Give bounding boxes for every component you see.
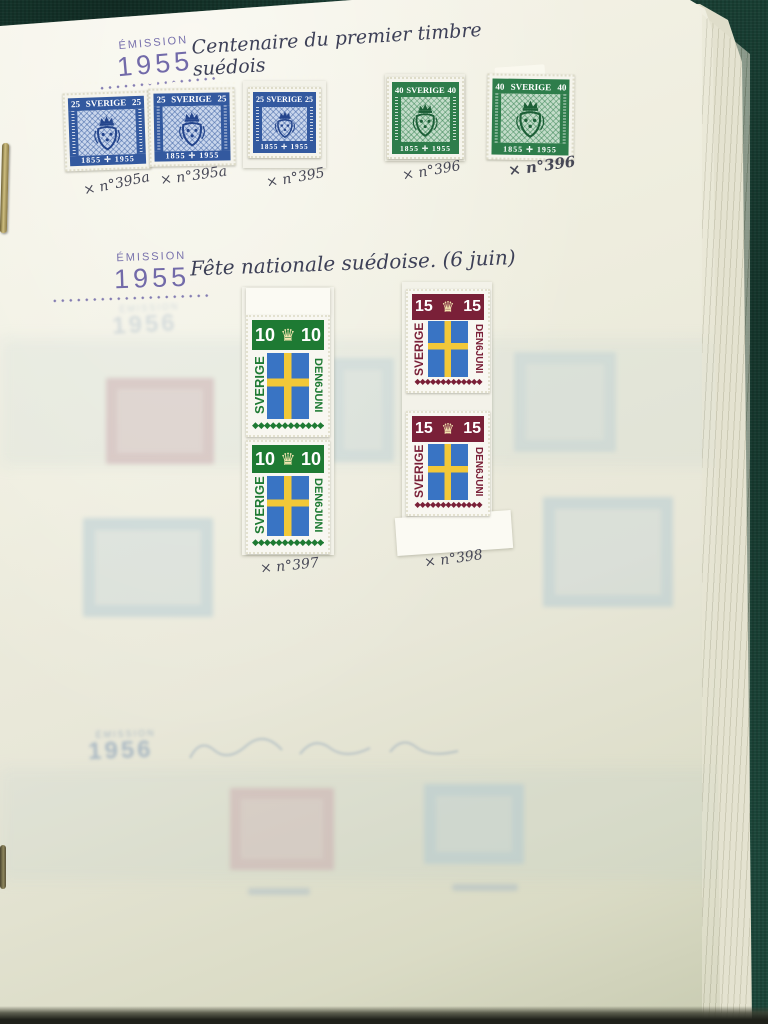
stamp-value: 25 bbox=[71, 99, 80, 109]
crown-icon: ♛ bbox=[280, 451, 295, 468]
dotted-line bbox=[51, 293, 209, 304]
stamp-value: 15 bbox=[415, 298, 433, 316]
stamp-country: SVERIGE bbox=[86, 98, 127, 109]
stamp-side-band bbox=[307, 107, 316, 142]
diamond-border: ◆◆◆◆◆◆◆◆◆◆◆◆◆ bbox=[252, 421, 324, 432]
photo-scene: ÉMISSION 1956 ÉMISSION 1956 ÉMISSION 195… bbox=[0, 0, 768, 1024]
stamp-years: 1855 ✛ 1955 bbox=[81, 154, 135, 165]
stamp-side-band bbox=[450, 97, 459, 142]
stamp-date: DEN6JUNI bbox=[473, 320, 484, 378]
show-through-band bbox=[0, 768, 720, 880]
stamp-country: SVERIGE bbox=[412, 442, 426, 501]
stamp-years: 1855 ✛ 1955 bbox=[166, 151, 220, 161]
stamp-date: DEN6JUNI bbox=[473, 442, 484, 501]
diamond-border: ◆◆◆◆◆◆◆◆◆◆◆◆◆ bbox=[412, 501, 484, 511]
stamp-side-band bbox=[392, 97, 401, 142]
stamp-value: 10 bbox=[255, 325, 275, 346]
stamp-value: 25 bbox=[156, 95, 165, 105]
stamp-date: DEN6JUNI bbox=[312, 350, 324, 421]
stamp-country: SVERIGE bbox=[412, 320, 426, 378]
coat-of-arms-icon bbox=[174, 108, 211, 148]
ghost-stamp-outline bbox=[424, 784, 524, 864]
stamp-10-ore-flag-green-2: 10 ♛ 10 SVERIGE DEN6JUNI ◆◆◆◆◆◆◆◆◆◆◆◆◆ bbox=[246, 440, 330, 554]
stamp-25-ore-blue-1: 25 SVERIGE 25 1855 ✛ 1955 bbox=[63, 91, 152, 172]
ghost-stamp-outline bbox=[543, 497, 673, 607]
selvage-perforation bbox=[63, 80, 237, 86]
stamp-value: 10 bbox=[301, 449, 321, 470]
stamp-years: 1855 ✛ 1955 bbox=[260, 143, 308, 151]
mount-tab bbox=[395, 510, 513, 556]
ghost-stamp-outline bbox=[83, 518, 213, 617]
catalog-label: × n°395a bbox=[159, 163, 228, 188]
crown-icon: ♛ bbox=[280, 327, 295, 344]
stamp-country: SVERIGE bbox=[406, 85, 444, 95]
swedish-flag bbox=[428, 321, 468, 377]
stamp-value: 25 bbox=[132, 97, 141, 107]
crown-icon: ♛ bbox=[441, 300, 454, 315]
ghost-stamp-outline bbox=[332, 358, 394, 462]
diamond-border: ◆◆◆◆◆◆◆◆◆◆◆◆◆ bbox=[412, 378, 484, 388]
section1-title: Centenaire du premier timbre suédois bbox=[191, 15, 543, 80]
stamp-25-ore-blue-3: 25 SVERIGE 25 1855 ✛ 1955 bbox=[248, 87, 321, 158]
section2-title: Fête nationale suédoise. (6 juin) bbox=[190, 244, 561, 281]
album-page: ÉMISSION 1956 ÉMISSION 1956 ÉMISSION 195… bbox=[0, 0, 768, 1024]
mount-tab bbox=[246, 288, 330, 315]
ghost-label bbox=[452, 884, 518, 891]
coat-of-arms-icon bbox=[271, 109, 299, 140]
coat-of-arms-icon bbox=[88, 112, 125, 153]
stamp-date: DEN6JUNI bbox=[312, 473, 324, 538]
stamp-value: 15 bbox=[415, 420, 433, 438]
stamp-value: 15 bbox=[463, 298, 481, 316]
stamp-side-band bbox=[221, 105, 231, 150]
stamp-side-band bbox=[253, 107, 262, 142]
binder-pin-bottom bbox=[0, 845, 6, 889]
ghost-stamp-outline bbox=[106, 378, 214, 464]
stamp-40-ore-green-2: 40 SVERIGE 40 1855 ✛ 1955 bbox=[486, 73, 574, 160]
crown-icon: ♛ bbox=[441, 422, 454, 437]
stamp-country: SVERIGE bbox=[266, 95, 302, 104]
stamp-value: 25 bbox=[217, 94, 226, 104]
stamp-country: SVERIGE bbox=[511, 81, 552, 92]
stamp-value: 10 bbox=[255, 449, 275, 470]
stamp-side-band bbox=[135, 108, 146, 153]
stamp-value: 40 bbox=[447, 85, 456, 95]
diamond-border: ◆◆◆◆◆◆◆◆◆◆◆◆◆ bbox=[252, 538, 324, 549]
stamp-40-ore-green-1: 40 SVERIGE 40 1855 ✛ 1955 bbox=[387, 77, 464, 159]
stamp-10-ore-flag-green-1: 10 ♛ 10 SVERIGE DEN6JUNI ◆◆◆◆◆◆◆◆◆◆◆◆◆ bbox=[246, 315, 330, 437]
ghost-label bbox=[248, 888, 310, 895]
selvage-perforation bbox=[247, 74, 323, 80]
stamp-country: SVERIGE bbox=[171, 94, 212, 105]
stamp-value: 40 bbox=[557, 82, 566, 92]
stamp-value: 40 bbox=[395, 85, 404, 95]
ghost-emission-stamp: ÉMISSION 1956 bbox=[111, 302, 181, 339]
swedish-flag bbox=[428, 444, 468, 500]
stamp-value: 15 bbox=[463, 420, 481, 438]
table-edge-shadow bbox=[0, 1006, 768, 1024]
stamp-country: SVERIGE bbox=[252, 473, 267, 538]
stamp-15-ore-flag-red-1: 15 ♛ 15 SVERIGE DEN6JUNI ◆◆◆◆◆◆◆◆◆◆◆◆◆ bbox=[406, 289, 490, 393]
stamp-value: 25 bbox=[305, 95, 313, 104]
ghost-handwriting bbox=[182, 724, 482, 776]
ghost-stamp-outline bbox=[514, 352, 616, 452]
catalog-label: × n°396 bbox=[401, 158, 462, 184]
stamp-value: 40 bbox=[495, 81, 504, 91]
stamp-15-ore-flag-red-2: 15 ♛ 15 SVERIGE DEN6JUNI ◆◆◆◆◆◆◆◆◆◆◆◆◆ bbox=[406, 411, 490, 516]
page-fore-edge bbox=[702, 14, 750, 1024]
stamp-25-ore-blue-2: 25 SVERIGE 25 1855 ✛ 1955 bbox=[148, 87, 235, 166]
ghost-emission-stamp: ÉMISSION 1956 bbox=[87, 729, 156, 764]
stamp-country: SVERIGE bbox=[252, 350, 267, 421]
stamp-years: 1855 ✛ 1955 bbox=[400, 144, 451, 153]
catalog-label: × n°397 bbox=[259, 555, 319, 577]
stamp-value: 25 bbox=[256, 95, 264, 104]
stamp-years: 1855 ✛ 1955 bbox=[503, 144, 557, 154]
coat-of-arms-icon bbox=[410, 100, 440, 140]
coat-of-arms-icon bbox=[512, 97, 549, 141]
ghost-stamp-outline bbox=[230, 788, 334, 870]
swedish-flag bbox=[267, 476, 309, 536]
swedish-flag bbox=[267, 353, 309, 419]
stamp-value: 10 bbox=[301, 325, 321, 346]
stamp-side-band bbox=[560, 94, 570, 143]
